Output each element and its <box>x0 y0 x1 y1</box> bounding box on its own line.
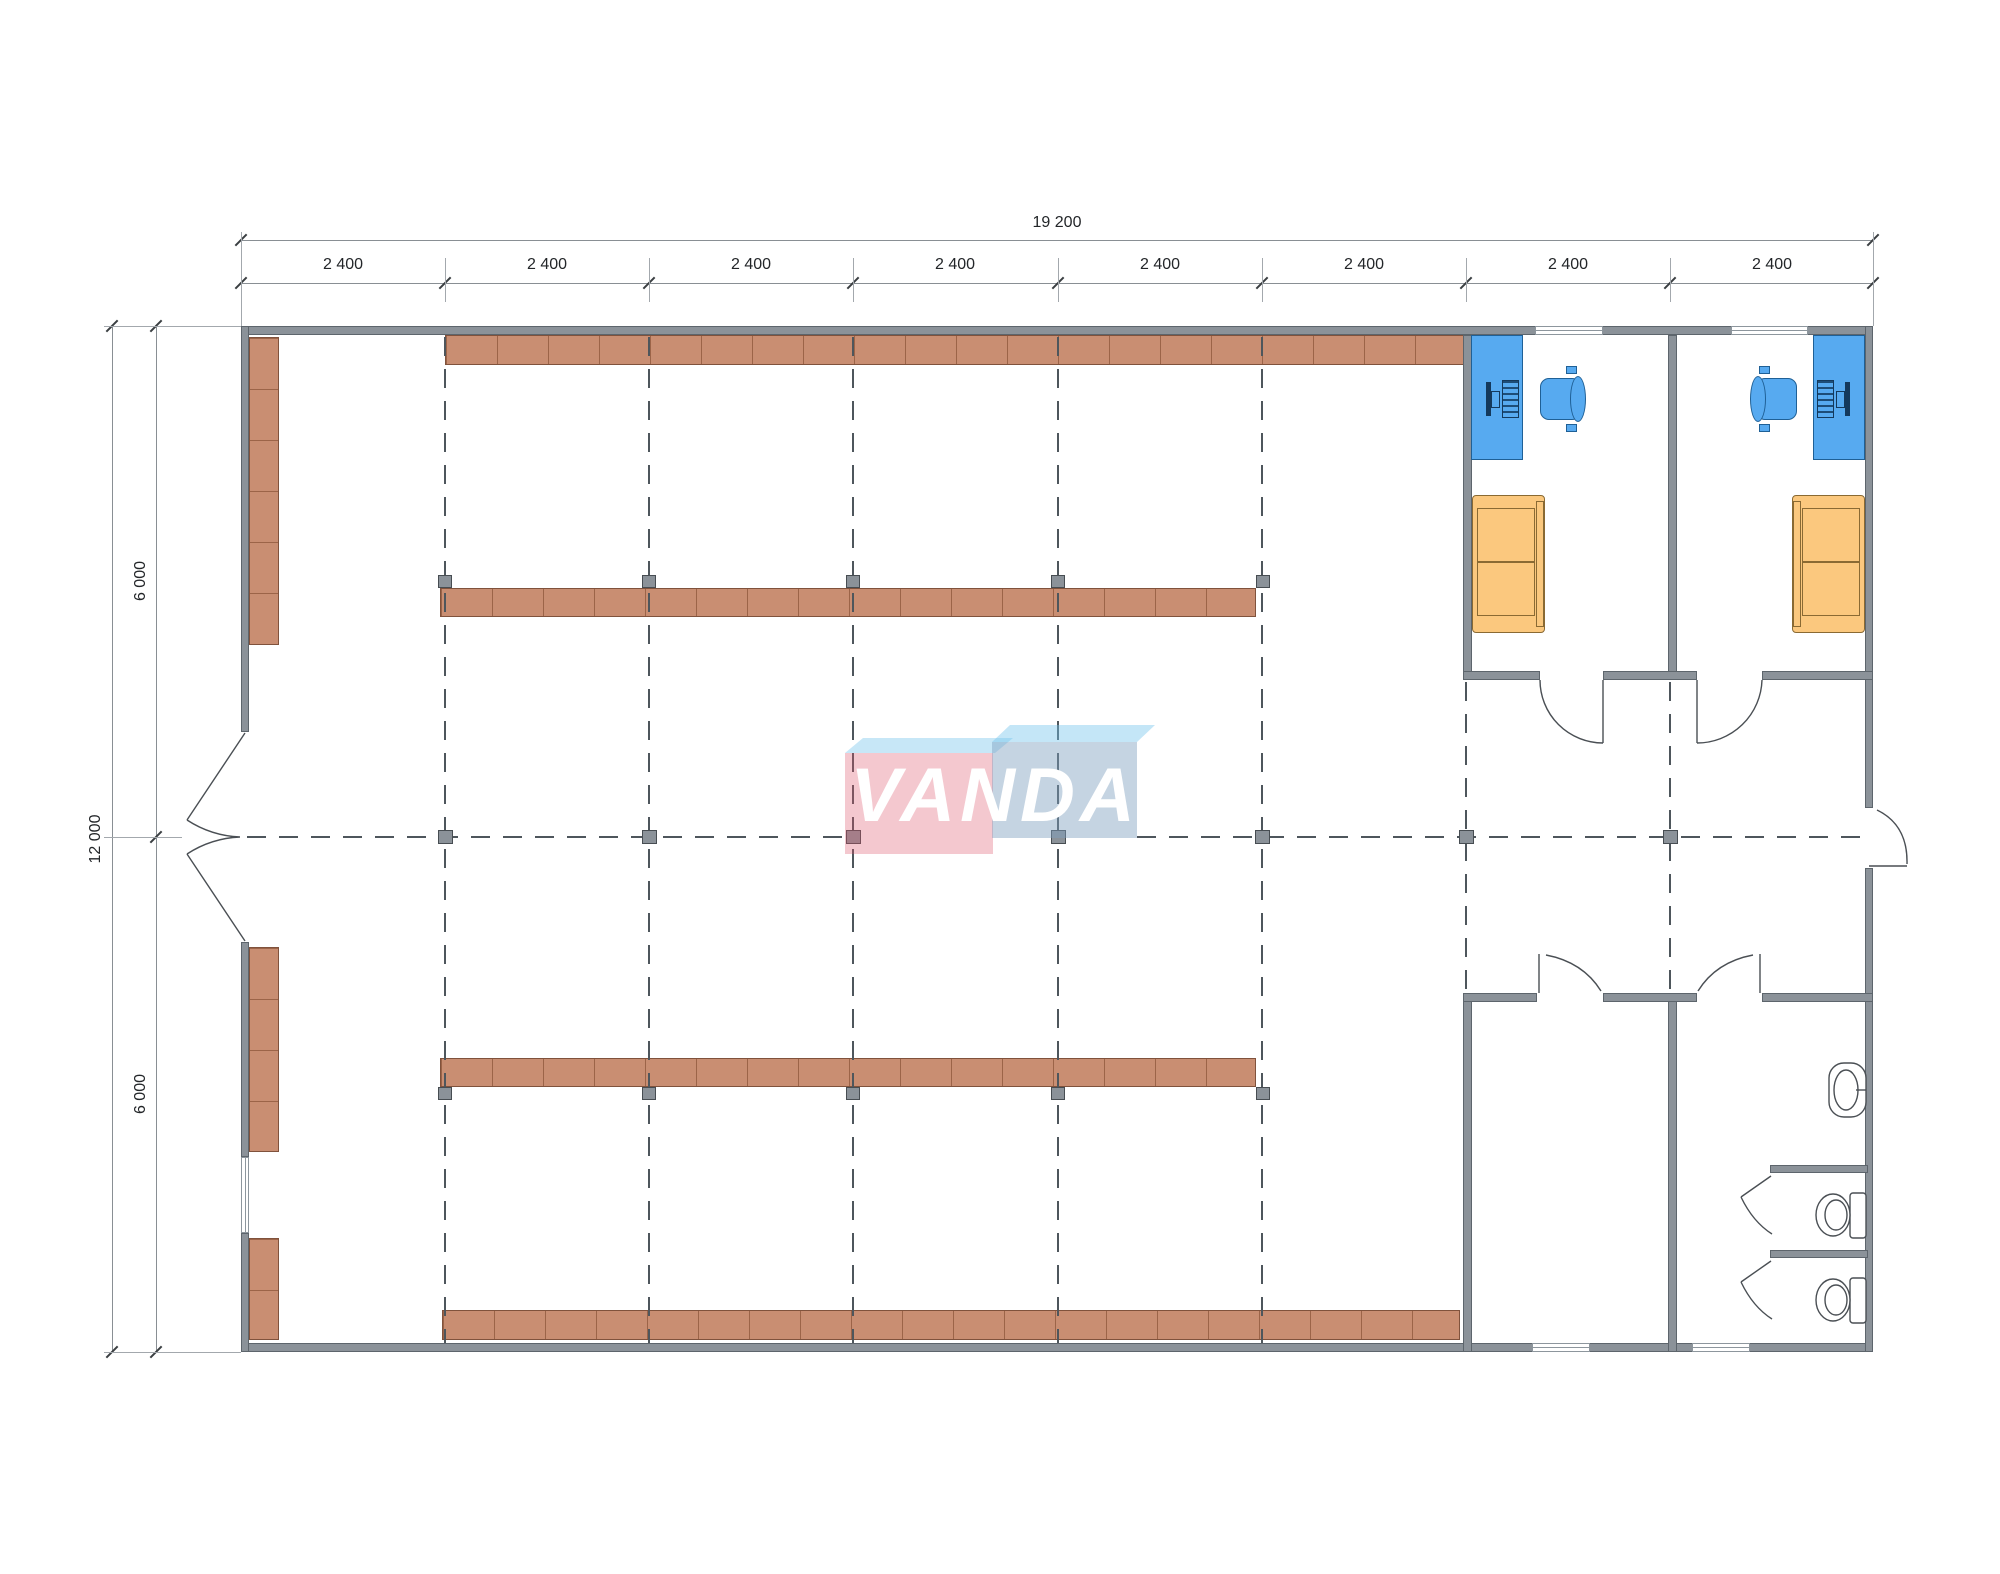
logo-wordmark: VANDA <box>795 756 1195 836</box>
monitor-stand-left-office <box>1491 391 1500 408</box>
monitor-right-office <box>1845 382 1850 416</box>
bathroom-door <box>1698 954 1760 993</box>
toilet-1-tank <box>1850 1193 1866 1238</box>
toilet-2-seat <box>1825 1285 1847 1315</box>
toilet-stall-door-1 <box>1741 1176 1772 1234</box>
toilet-2-tank <box>1850 1278 1866 1323</box>
chair-armrest-left-office-top <box>1566 366 1577 374</box>
sofa-cushion <box>1477 562 1535 616</box>
toilet-stall-door-2 <box>1741 1261 1772 1319</box>
office-left-door <box>1540 680 1603 743</box>
sofa-cushion <box>1802 562 1860 616</box>
floor-plan-canvas: 19 200 12 000 6 000 6 000 VANDA <box>0 0 2000 1574</box>
logo-blue-box-flap <box>992 725 1155 742</box>
sofa-backrest <box>1793 501 1801 627</box>
sink-basin <box>1834 1070 1858 1110</box>
keyboard-right-office <box>1817 380 1834 418</box>
chair-armrest-right-office-top <box>1759 366 1770 374</box>
toilet-1-seat <box>1825 1200 1847 1230</box>
storage-room-door <box>1539 954 1601 993</box>
chair-back-right-office <box>1750 376 1766 422</box>
sofa-cushion <box>1802 508 1860 562</box>
office-right-door <box>1697 680 1762 743</box>
sofa-backrest <box>1536 501 1544 627</box>
keyboard-left-office <box>1502 380 1519 418</box>
chair-back-left-office <box>1570 376 1586 422</box>
sofa-cushion <box>1477 508 1535 562</box>
monitor-stand-right-office <box>1836 391 1845 408</box>
chair-armrest-right-office-bottom <box>1759 424 1770 432</box>
chair-armrest-left-office-bottom <box>1566 424 1577 432</box>
side-exit-door <box>1869 810 1907 866</box>
entrance-double-door <box>187 733 245 941</box>
logo-pink-box-flap <box>845 738 1013 753</box>
